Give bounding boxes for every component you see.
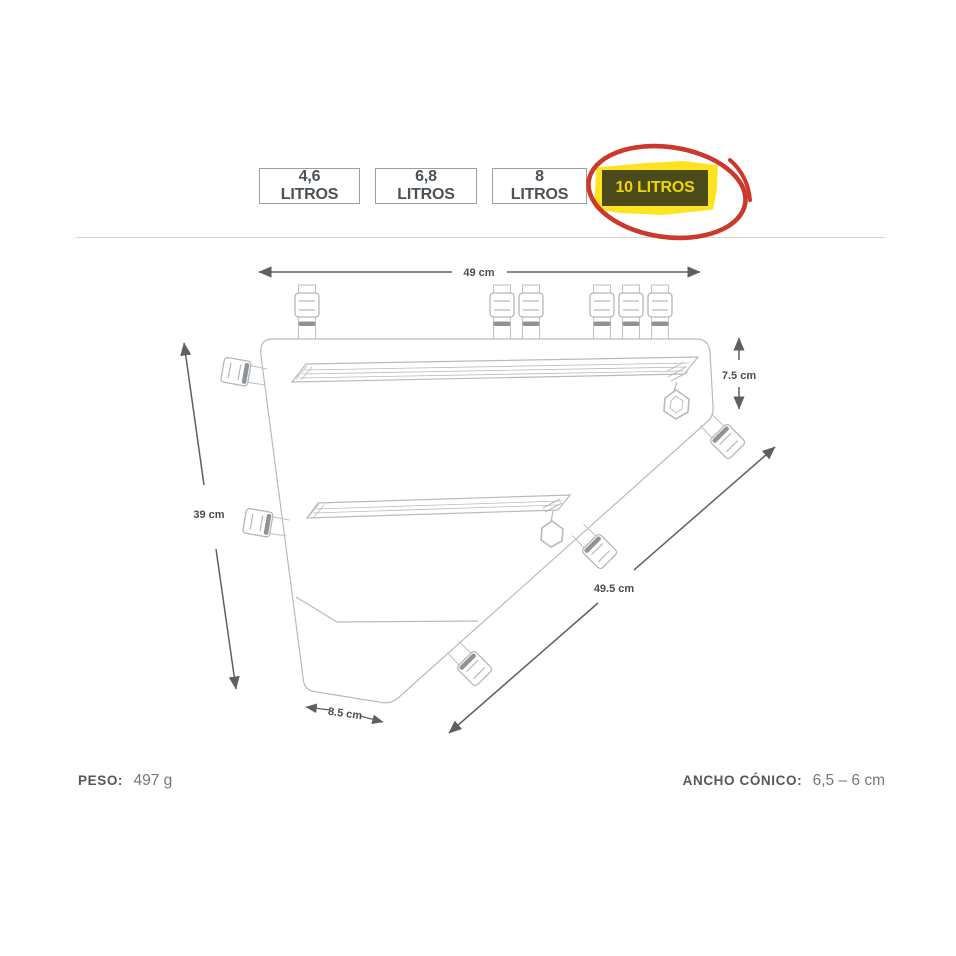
zipper-pull-loop [664, 390, 689, 419]
red-ellipse-overstroke [730, 160, 750, 200]
side-buckle [242, 508, 290, 540]
bag-outline [261, 339, 713, 703]
dimension-left-height: 39 cm [184, 343, 236, 689]
top-strap [295, 285, 319, 339]
zipper-slider [543, 499, 562, 512]
top-strap [490, 285, 514, 339]
top-strap [648, 285, 672, 339]
dimension-top-width: 49 cm [259, 267, 700, 279]
frame-bag-diagram: 49 cm 7.5 cm 39 cm 49.5 cm [0, 0, 956, 956]
product-spec-page: 4,6 LITROS 6,8 LITROS 8 LITROS 10 LITROS [0, 0, 956, 956]
dimension-annotations: 49 cm 7.5 cm 39 cm 49.5 cm [184, 267, 775, 733]
svg-text:49 cm: 49 cm [463, 267, 494, 279]
weight-label: PESO: [78, 773, 123, 788]
weight-spec: PESO: 497 g [78, 772, 172, 790]
taper-width-spec: ANCHO CÓNICO: 6,5 – 6 cm [683, 772, 885, 790]
side-buckle [444, 638, 493, 687]
zipper-slider [666, 362, 688, 381]
side-buckle [697, 411, 746, 460]
size-button-6-8-litros[interactable]: 6,8 LITROS [375, 168, 477, 204]
zipper-garage-left [296, 366, 312, 380]
svg-text:8.5 cm: 8.5 cm [327, 706, 363, 723]
taper-width-label: ANCHO CÓNICO: [683, 773, 803, 788]
lower-zipper [307, 495, 570, 547]
section-divider [76, 237, 885, 238]
top-straps [295, 285, 672, 339]
zipper-pull-cord [551, 511, 553, 522]
top-strap [590, 285, 614, 339]
top-strap [519, 285, 543, 339]
svg-text:39 cm: 39 cm [193, 509, 224, 521]
size-button-10-litros[interactable]: 10 LITROS [602, 170, 708, 206]
side-buckle [220, 357, 268, 389]
bottom-gusset-line [296, 597, 478, 622]
dimension-diagonal-length: 49.5 cm [449, 447, 775, 733]
zipper-pull-cord [674, 382, 677, 391]
selected-size-wrap: 10 LITROS [602, 168, 708, 204]
main-zipper [292, 357, 698, 419]
svg-text:49.5 cm: 49.5 cm [594, 583, 635, 595]
dimension-bottom-width: 8.5 cm [306, 706, 383, 723]
diagonal-buckles [444, 411, 746, 687]
size-selector: 4,6 LITROS 6,8 LITROS 8 LITROS 10 LITROS [259, 168, 708, 204]
side-buckle [569, 521, 618, 570]
svg-text:7.5 cm: 7.5 cm [722, 370, 756, 382]
taper-width-value: 6,5 – 6 cm [813, 772, 885, 789]
weight-value: 497 g [133, 772, 172, 789]
zipper-pull-loop [541, 521, 563, 547]
left-buckles [220, 357, 290, 540]
zipper-garage-left [309, 504, 324, 517]
size-button-4-6-litros[interactable]: 4,6 LITROS [259, 168, 360, 204]
size-button-8-litros[interactable]: 8 LITROS [492, 168, 587, 204]
top-strap [619, 285, 643, 339]
dimension-right-depth: 7.5 cm [722, 338, 756, 409]
